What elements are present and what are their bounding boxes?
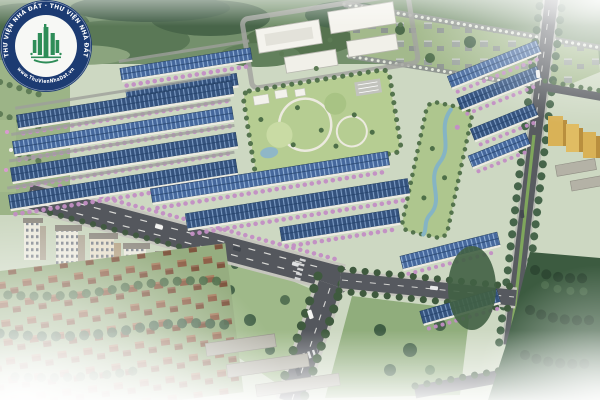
screenshot-root: THƯ VIỆN NHÀ ĐẤT · THƯ VIỆN NHÀ ĐẤT www.… — [0, 0, 600, 400]
car — [430, 286, 438, 291]
watermark-logo: THƯ VIỆN NHÀ ĐẤT · THƯ VIỆN NHÀ ĐẤT www.… — [0, 0, 92, 92]
aerial-masterplan-render: THƯ VIỆN NHÀ ĐẤT · THƯ VIỆN NHÀ ĐẤT www.… — [0, 0, 600, 400]
